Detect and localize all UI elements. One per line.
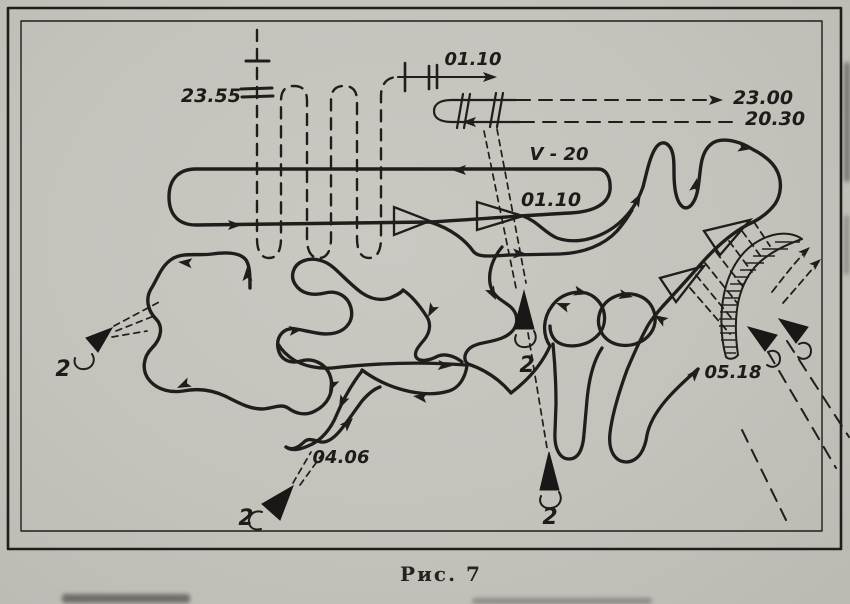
tactical-diagram: 2 2 2 2 23.55 01.10 23.00 20.30 V - 20 0… [0, 0, 850, 604]
submarine-count-label: 2 [542, 505, 557, 530]
outer-frame-border [8, 8, 841, 549]
submarine-hook-icon [75, 354, 94, 369]
submarine-hook-icon [515, 331, 536, 347]
speed-label-v20: V - 20 [530, 144, 589, 165]
submarine-icon [748, 327, 777, 351]
turnaround-loop [434, 93, 520, 128]
submarine-icon [540, 452, 559, 490]
transit-arrowhead [709, 95, 723, 105]
transit-dashed-lines [517, 95, 741, 122]
scan-smudge [62, 594, 190, 603]
main-ship-track [144, 140, 780, 462]
submarine-icon [779, 319, 808, 343]
figure-caption: Рис. 7 [400, 562, 482, 586]
torpedo-fan-dashes [690, 222, 770, 334]
submarine-east-pair-group [748, 319, 811, 367]
submarine-count-label: 2 [55, 357, 70, 382]
scan-smudge [844, 215, 849, 275]
bearing-dashed-lines [112, 129, 547, 485]
time-label-2030: 20.30 [745, 108, 805, 130]
submarine-center-group: 2 [514, 291, 536, 378]
time-label-0110-gate: 01.10 [445, 49, 502, 70]
submarine-southwest-group: 2 [238, 486, 293, 531]
submarine-icon [262, 486, 293, 520]
time-label-0518: 05.18 [705, 362, 762, 383]
scan-smudge [844, 62, 850, 182]
breakout-dashed-arrows [772, 244, 824, 303]
time-label-0110-loop: 01.10 [521, 189, 581, 211]
submarine-south-group: 2 [540, 452, 561, 530]
scan-smudge [472, 598, 652, 604]
submarine-hook-icon [798, 343, 811, 359]
submarine-count-label: 2 [519, 353, 534, 378]
time-label-2300: 23.00 [733, 87, 793, 109]
submarine-icon [86, 328, 112, 352]
submarine-west-group: 2 [55, 328, 112, 382]
time-label-0406: 04.06 [313, 447, 370, 468]
submarine-count-label: 2 [238, 506, 253, 531]
submarine-icon [514, 291, 534, 329]
time-label-2355: 23.55 [181, 85, 241, 107]
inner-frame-border [21, 21, 822, 531]
scanned-figure-page: 2 2 2 2 23.55 01.10 23.00 20.30 V - 20 0… [0, 0, 850, 604]
